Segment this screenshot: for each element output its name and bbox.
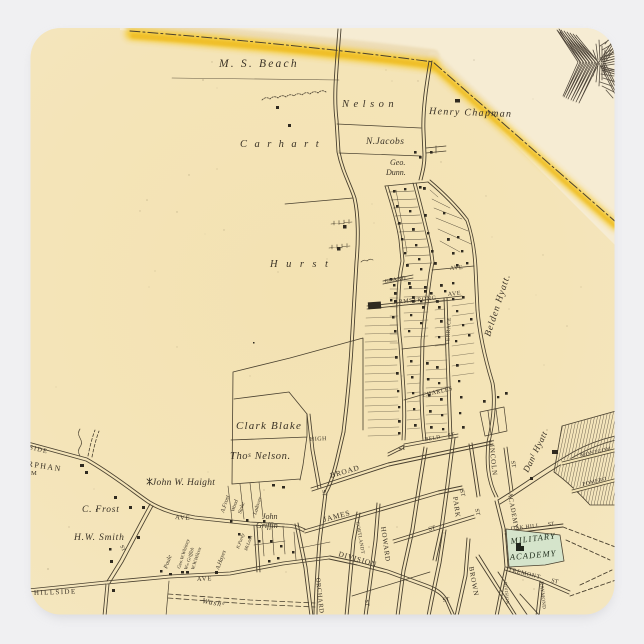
svg-text:Dunn.: Dunn. — [385, 168, 406, 177]
svg-text:HIGH: HIGH — [310, 436, 327, 443]
svg-text:M. S. Beach: M. S. Beach — [218, 58, 299, 70]
svg-text:ST: ST — [442, 597, 450, 604]
svg-text:John: John — [262, 512, 278, 521]
svg-text:AVE: AVE — [450, 265, 464, 272]
svg-text:Nelson: Nelson — [341, 99, 398, 110]
svg-text:ST.: ST. — [548, 521, 557, 528]
svg-text:M: M — [31, 470, 37, 477]
svg-text:Carhart: Carhart — [240, 139, 326, 150]
svg-text:Griffin: Griffin — [256, 521, 278, 530]
svg-text:C. Frost: C. Frost — [82, 505, 120, 515]
svg-text:H.W. Smith: H.W. Smith — [73, 533, 125, 543]
svg-text:John W. Haight: John W. Haight — [152, 478, 215, 488]
svg-text:Hurst: Hurst — [269, 259, 336, 270]
svg-text:Geo.: Geo. — [390, 158, 405, 167]
svg-text:Thos Nelson.: Thos Nelson. — [230, 451, 291, 462]
svg-text:Clark Blake: Clark Blake — [236, 420, 302, 432]
svg-text:AVE: AVE — [175, 514, 191, 522]
svg-text:ST: ST — [447, 432, 455, 439]
svg-text:HILLSIDE: HILLSIDE — [34, 588, 77, 597]
svg-text:ST: ST — [509, 460, 516, 468]
svg-text:N.Jacobs: N.Jacobs — [365, 137, 404, 147]
svg-text:AVE: AVE — [197, 575, 213, 583]
